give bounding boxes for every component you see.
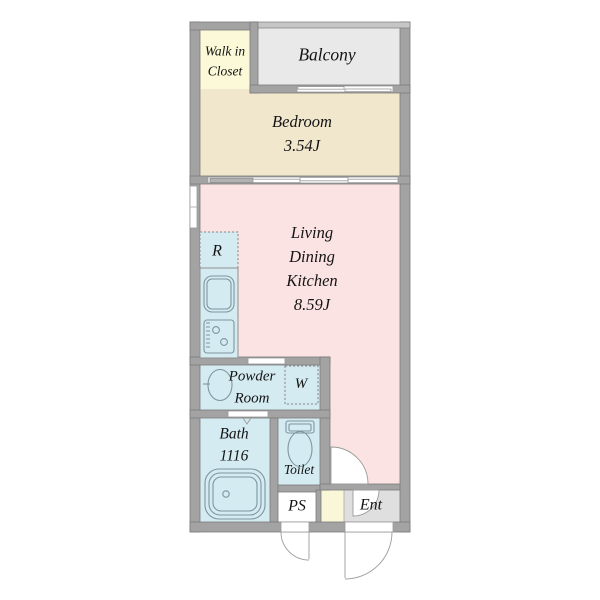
walk-in-closet-label: Walk in Closet [205, 41, 245, 80]
bath-size: 1116 [219, 446, 248, 468]
balcony-text: Balcony [298, 42, 355, 67]
walk-in-closet-line1: Walk in [205, 41, 245, 61]
ps-door-opening [281, 522, 309, 532]
refrigerator-text: R [212, 239, 222, 262]
ps-door-arc [281, 532, 309, 560]
ldk-label: Living Dining Kitchen 8.59J [286, 221, 337, 317]
bedroom-size: 3.54J [272, 134, 332, 158]
pipe-space-label: PS [288, 494, 306, 517]
bath-label: Bath 1116 [219, 424, 248, 469]
wall-closet-balcony [250, 22, 258, 93]
kitchen-counter [200, 268, 238, 358]
powder-door-opening [248, 358, 285, 364]
washer-text: W [295, 374, 308, 396]
bath-door-opening [228, 411, 268, 417]
ldk-line1: Living [286, 221, 337, 245]
ldk-size: 8.59J [286, 293, 337, 317]
bedroom-label: Bedroom 3.54J [272, 110, 332, 158]
entrance-door-arc [345, 532, 392, 579]
wall-ent-ldk [320, 484, 400, 490]
washer-label: W [295, 374, 308, 396]
entrance-door-opening [345, 522, 393, 532]
wall-right [400, 22, 410, 532]
pipe-space-text: PS [288, 494, 306, 517]
balcony-window-sash-left [298, 87, 344, 90]
refrigerator-label: R [212, 239, 222, 262]
ldk-line3: Kitchen [286, 269, 337, 293]
wall-left [190, 22, 200, 532]
powder-room-line1: Powder [229, 366, 276, 388]
stove-grill [206, 323, 210, 347]
shoe-cabinet [319, 488, 344, 524]
balcony-rail [250, 22, 410, 28]
toilet-text: Toilet [284, 460, 314, 480]
sliding-panel-4 [348, 179, 398, 182]
powder-room-label: Powder Room [229, 366, 276, 410]
floorplan: Walk in Closet Balcony Bedroom 3.54J Liv… [0, 0, 600, 600]
wall-top-closet [190, 22, 258, 30]
walk-in-closet-line2: Closet [205, 61, 245, 81]
sliding-panel-2 [253, 179, 300, 182]
bedroom-line1: Bedroom [272, 110, 332, 134]
sliding-panel-1 [210, 178, 253, 182]
entrance-label: Ent [360, 493, 382, 516]
balcony-window-sash-right [345, 89, 391, 92]
toilet-label: Toilet [284, 460, 314, 480]
powder-room-line2: Room [229, 388, 276, 410]
sliding-panel-3 [300, 177, 348, 180]
wall-bath-toilet [270, 418, 278, 522]
wall-ps-right [316, 490, 321, 522]
wall-toilet-ps [278, 485, 320, 492]
entrance-text: Ent [360, 493, 382, 516]
balcony-label: Balcony [298, 42, 355, 67]
ldk-line2: Dining [286, 245, 337, 269]
bath-line1: Bath [219, 424, 248, 446]
wall-wet-right [320, 357, 330, 490]
